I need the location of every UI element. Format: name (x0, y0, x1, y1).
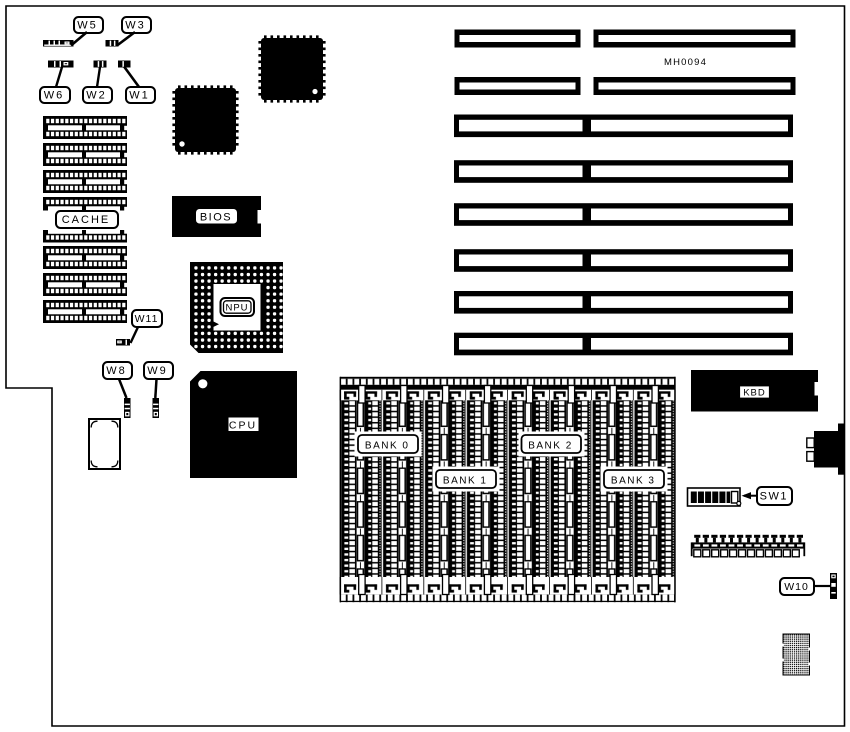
svg-text:SW1: SW1 (760, 491, 788, 503)
svg-text:W6: W6 (44, 90, 65, 102)
svg-text:BANK 2: BANK 2 (528, 441, 573, 452)
svg-text:W8: W8 (106, 365, 127, 377)
svg-text:W11: W11 (135, 313, 159, 325)
svg-text:BANK 1: BANK 1 (443, 476, 488, 487)
svg-text:NPU: NPU (225, 303, 248, 314)
svg-text:KBD: KBD (743, 388, 766, 399)
svg-text:BIOS: BIOS (200, 212, 232, 224)
svg-text:MH0094: MH0094 (664, 57, 707, 68)
svg-text:BANK 3: BANK 3 (611, 476, 656, 487)
svg-text:W1: W1 (129, 90, 150, 102)
svg-text:W2: W2 (86, 90, 107, 102)
svg-text:CPU: CPU (229, 419, 257, 431)
svg-text:W10: W10 (784, 581, 809, 593)
svg-text:W3: W3 (125, 20, 146, 32)
svg-text:BANK 0: BANK 0 (365, 441, 410, 452)
svg-text:W5: W5 (77, 20, 98, 32)
svg-text:W9: W9 (147, 365, 168, 377)
svg-text:CACHE: CACHE (62, 214, 111, 226)
